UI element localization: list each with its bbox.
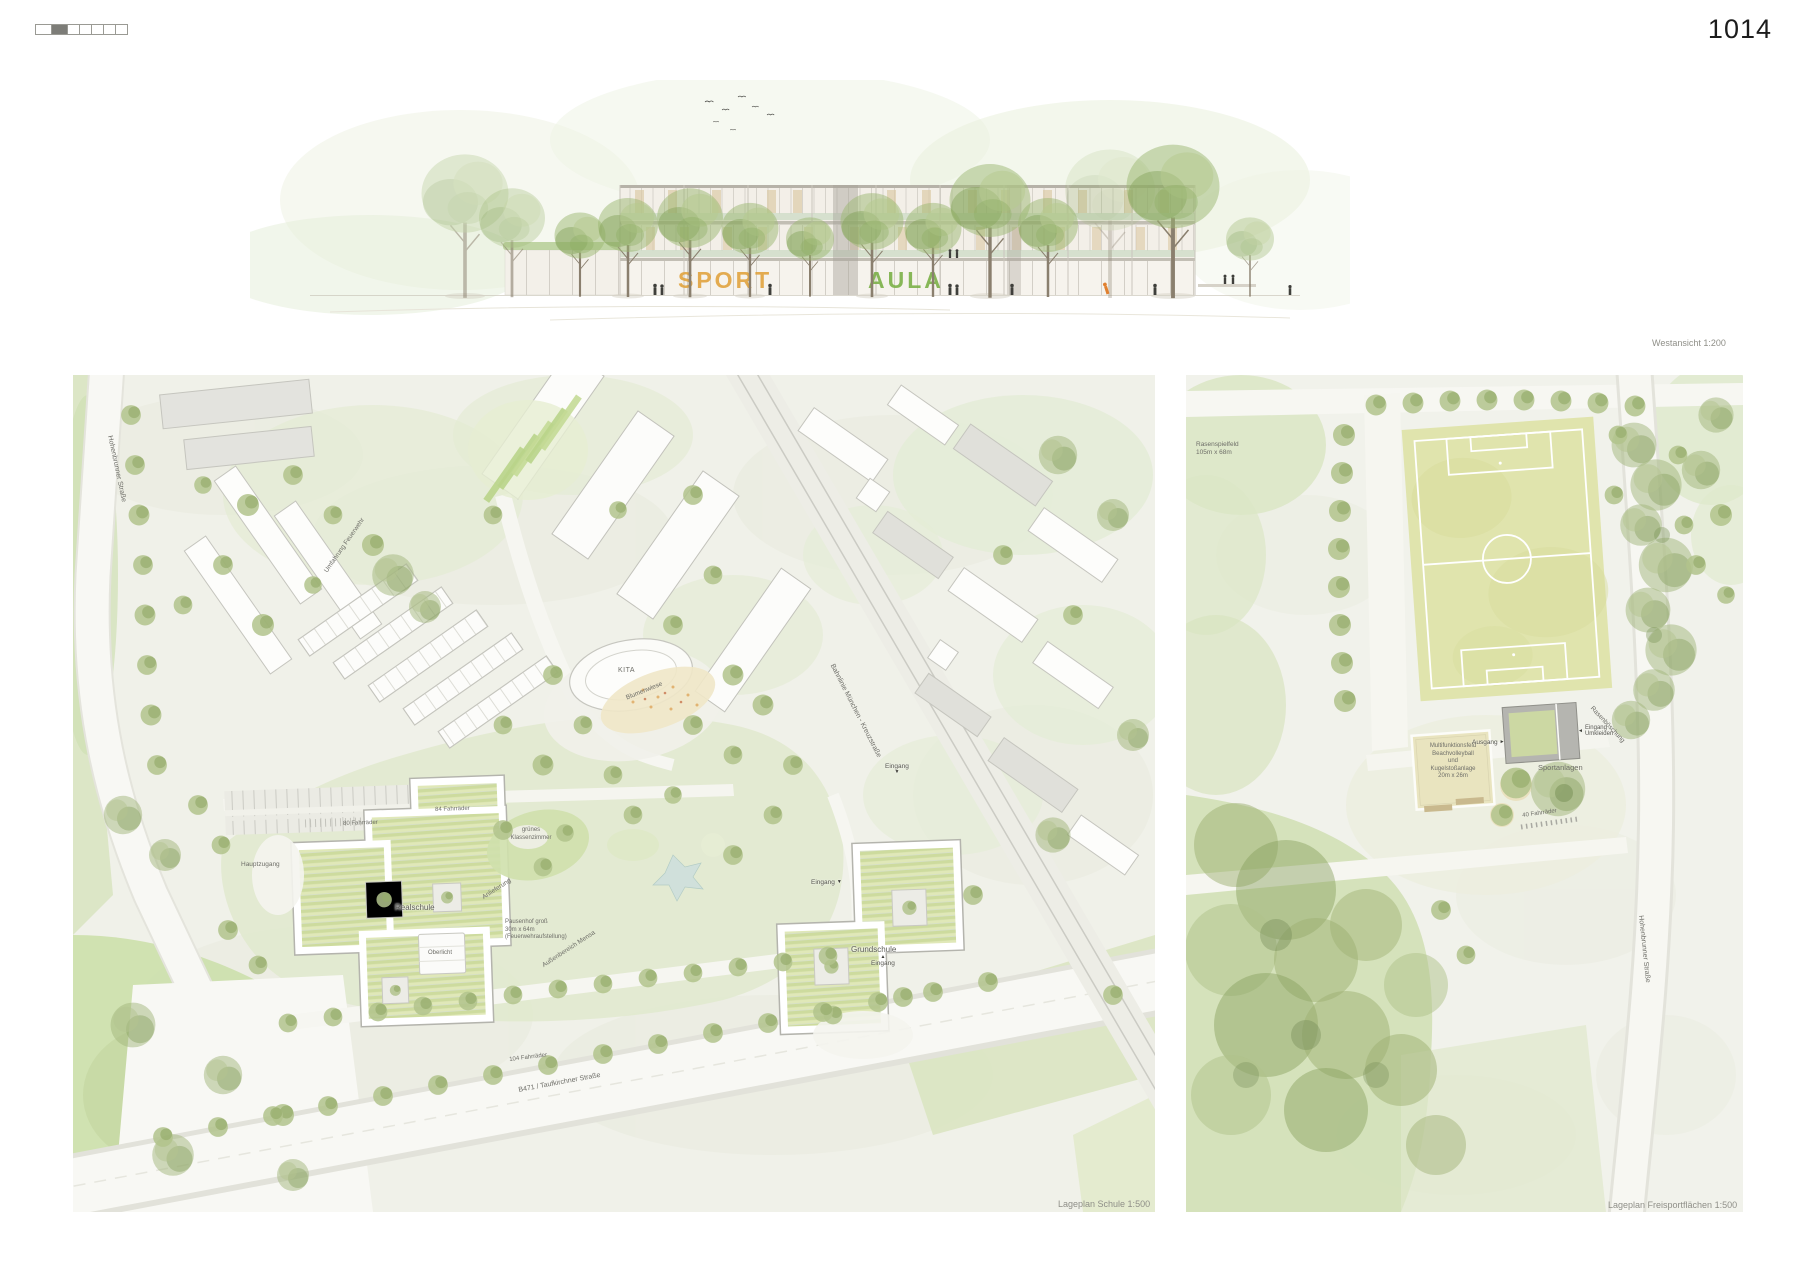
entrance-arrow-icon: ▼ <box>894 770 899 775</box>
exit-label: Ausgang <box>1472 739 1498 746</box>
scale-bar <box>35 24 128 35</box>
facade-text-sport: SPORT <box>678 267 772 293</box>
entrance-marker: Eingang ▼ <box>811 879 842 886</box>
label-multifunktionsfeld: Multifunktionsfeld Beachvolleyball und K… <box>1416 743 1490 781</box>
site-plan-school-caption: Lageplan Schule 1:500 <box>1058 1199 1150 1209</box>
label-kita: KITA <box>618 667 635 676</box>
label-bikes-84: 84 Fahrräder <box>435 806 470 815</box>
label-rasenspielfeld: Rasenspielfeld 105m x 68m <box>1196 441 1239 457</box>
presentation-board: 1014 <box>0 0 1800 1272</box>
scale-bar-segment <box>92 24 104 35</box>
label-oberlicht: Oberlicht <box>419 950 461 958</box>
entrance-marker: Eingang ▼ <box>885 763 909 775</box>
low-wall <box>1198 284 1256 287</box>
label-gruenes-klassenzimmer: grünes Klassenzimmer <box>499 827 563 842</box>
entrance-arrow-icon: ▼ <box>837 880 842 885</box>
site-plan-sports: Rasenspielfeld 105m x 68m Rasenböschung … <box>1186 375 1743 1212</box>
label-sportanlagen: Sportanlagen <box>1538 763 1583 772</box>
exit-marker: Ausgang ► <box>1472 739 1505 746</box>
entrance-arrow-icon: ◄ <box>1578 729 1583 734</box>
changing-rooms-building <box>1502 702 1580 763</box>
entrance-label: Eingang <box>811 879 835 886</box>
label-bikes-80: 80 Fahrräder <box>343 820 378 829</box>
scale-bar-segment <box>68 24 80 35</box>
elevation-caption: Westansicht 1:200 <box>1652 338 1726 348</box>
site-plan-sports-caption: Lageplan Freisportflächen 1:500 <box>1608 1200 1737 1210</box>
scale-bar-segment <box>104 24 116 35</box>
entrance-label: Eingang <box>871 960 895 967</box>
label-grundschule: Grundschule <box>851 945 896 955</box>
entrance-marker: ◄ Eingang Umkleiden <box>1578 725 1613 737</box>
scale-bar-segment <box>116 24 128 35</box>
label-realschule: Realschule <box>395 903 435 913</box>
soccer-field <box>1402 416 1615 701</box>
scale-bar-segment-filled <box>52 24 68 35</box>
entrance-marker: ▲ Eingang <box>871 955 895 967</box>
label-hauptzugang: Hauptzugang <box>241 861 280 869</box>
entrance-label: Eingang Umkleiden <box>1585 725 1613 737</box>
scale-bar-segment <box>35 24 52 35</box>
scale-bar-segment <box>80 24 92 35</box>
entry-plaza-west <box>252 835 304 915</box>
exit-arrow-icon: ► <box>1500 740 1505 745</box>
site-plan-school: Hohenbrunner Straße Umfahrung Feuerwehr … <box>73 375 1155 1212</box>
elevation-drawing: SPORT AULA <box>250 80 1350 325</box>
label-pausenhof: Pausenhof groß 30m x 64m (Feuerwehraufst… <box>505 919 567 942</box>
page-number: 1014 <box>1692 14 1772 45</box>
